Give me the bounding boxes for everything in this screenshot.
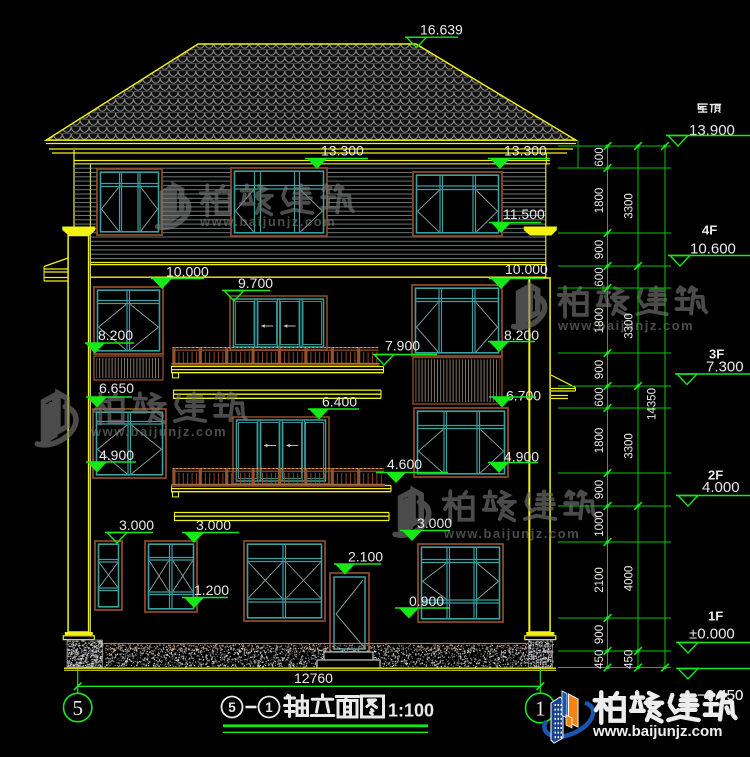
svg-text:8.200: 8.200 [98, 327, 133, 343]
svg-text:4000: 4000 [624, 566, 636, 592]
svg-text:5: 5 [72, 696, 83, 720]
svg-text:7.900: 7.900 [385, 338, 420, 354]
svg-text:4.000: 4.000 [702, 479, 740, 496]
svg-text:3300: 3300 [624, 313, 636, 339]
svg-text:16.639: 16.639 [420, 22, 463, 38]
svg-text:3.000: 3.000 [417, 515, 452, 531]
svg-text:450: 450 [594, 650, 606, 669]
svg-text:1: 1 [265, 700, 273, 715]
svg-text:±0.000: ±0.000 [689, 626, 735, 643]
svg-text:3300: 3300 [624, 193, 636, 219]
svg-text:www.baijunjz.com: www.baijunjz.com [90, 424, 227, 439]
svg-text:3.000: 3.000 [196, 517, 231, 533]
svg-text:900: 900 [594, 625, 606, 644]
svg-text:9.700: 9.700 [238, 275, 273, 291]
svg-text:4F: 4F [702, 223, 717, 238]
svg-text:600: 600 [594, 387, 606, 406]
svg-text:3.000: 3.000 [119, 517, 154, 533]
svg-text:−0.450: −0.450 [697, 687, 743, 704]
svg-text:11.500: 11.500 [503, 206, 545, 222]
svg-text:13.300: 13.300 [321, 143, 364, 159]
svg-text:0.900: 0.900 [409, 593, 444, 609]
svg-text:5: 5 [228, 700, 236, 715]
svg-text:900: 900 [594, 360, 606, 379]
svg-text:6.650: 6.650 [99, 380, 134, 396]
svg-text:10.000: 10.000 [505, 261, 548, 277]
svg-text:2.100: 2.100 [348, 549, 383, 565]
svg-text:3300: 3300 [624, 433, 636, 459]
svg-text:13.300: 13.300 [504, 143, 547, 159]
svg-text:www.baijunjz.com: www.baijunjz.com [592, 723, 722, 740]
svg-text:7.300: 7.300 [706, 359, 744, 376]
svg-text:www.baijunjz.com: www.baijunjz.com [199, 214, 336, 229]
svg-text:1000: 1000 [594, 511, 606, 537]
svg-text:600: 600 [594, 147, 606, 166]
svg-text:6.700: 6.700 [506, 388, 541, 404]
svg-text:12760: 12760 [294, 670, 333, 686]
svg-text:6.400: 6.400 [322, 394, 357, 410]
svg-text:1800: 1800 [594, 188, 606, 214]
svg-text:4.900: 4.900 [99, 447, 134, 463]
svg-text:1F: 1F [708, 609, 723, 624]
svg-text:10.000: 10.000 [166, 264, 209, 280]
svg-text:13.900: 13.900 [689, 122, 735, 139]
svg-text:450: 450 [624, 650, 636, 669]
svg-text:1800: 1800 [594, 308, 606, 334]
svg-text:1800: 1800 [594, 428, 606, 454]
svg-text:14350: 14350 [647, 388, 659, 420]
svg-text:4.600: 4.600 [387, 456, 422, 472]
svg-text:www.baijunjz.com: www.baijunjz.com [443, 526, 580, 541]
svg-text:8.200: 8.200 [504, 327, 539, 343]
svg-text:900: 900 [594, 480, 606, 499]
svg-text:2100: 2100 [594, 567, 606, 593]
svg-text:1: 1 [535, 697, 546, 721]
svg-text:1.200: 1.200 [194, 582, 229, 598]
svg-text:600: 600 [594, 267, 606, 286]
svg-text:1:100: 1:100 [388, 701, 434, 721]
svg-text:900: 900 [594, 240, 606, 259]
